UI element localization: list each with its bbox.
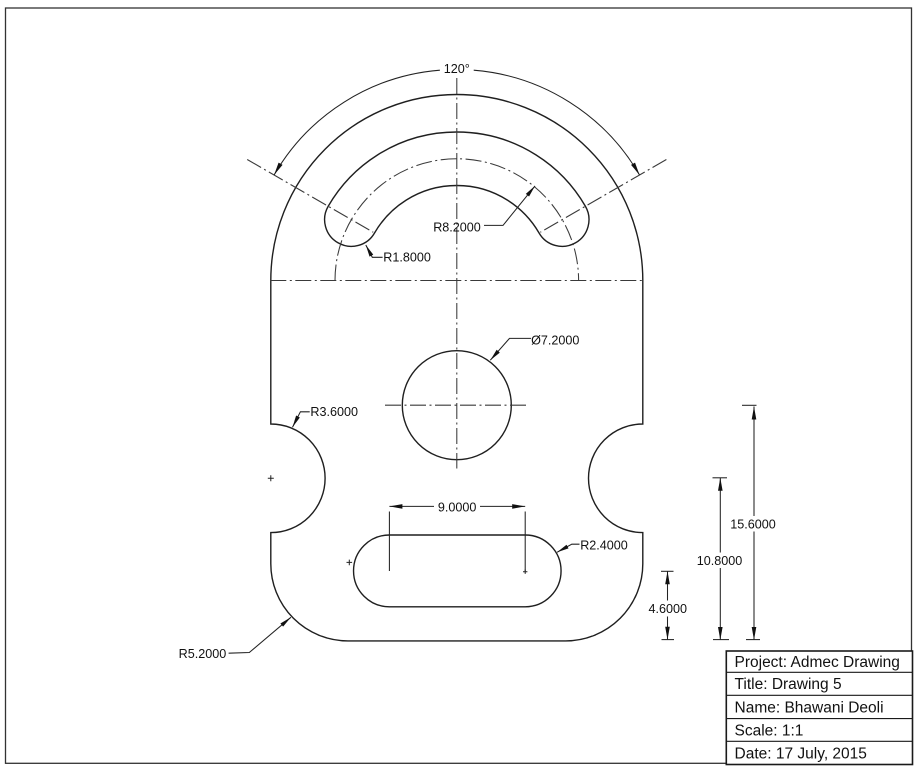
svg-text:15.6000: 15.6000 bbox=[730, 517, 776, 531]
svg-text:R8.2000: R8.2000 bbox=[433, 220, 481, 234]
svg-text:9.0000: 9.0000 bbox=[438, 500, 477, 514]
svg-text:Project: Admec Drawing: Project: Admec Drawing bbox=[735, 654, 900, 671]
svg-text:R1.8000: R1.8000 bbox=[383, 250, 431, 264]
svg-text:Name: Bhawani Deoli: Name: Bhawani Deoli bbox=[735, 699, 884, 716]
svg-text:Scale: 1:1: Scale: 1:1 bbox=[735, 722, 804, 739]
svg-text:Ø7.2000: Ø7.2000 bbox=[531, 333, 579, 347]
svg-text:Date: 17 July, 2015: Date: 17 July, 2015 bbox=[735, 745, 867, 762]
svg-text:R3.6000: R3.6000 bbox=[310, 405, 358, 419]
svg-text:120°: 120° bbox=[444, 62, 470, 76]
svg-text:R2.4000: R2.4000 bbox=[580, 538, 628, 552]
svg-text:10.8000: 10.8000 bbox=[697, 554, 743, 568]
svg-text:4.6000: 4.6000 bbox=[649, 602, 688, 616]
svg-text:R5.2000: R5.2000 bbox=[179, 647, 227, 661]
svg-text:Title: Drawing 5: Title: Drawing 5 bbox=[735, 676, 842, 693]
